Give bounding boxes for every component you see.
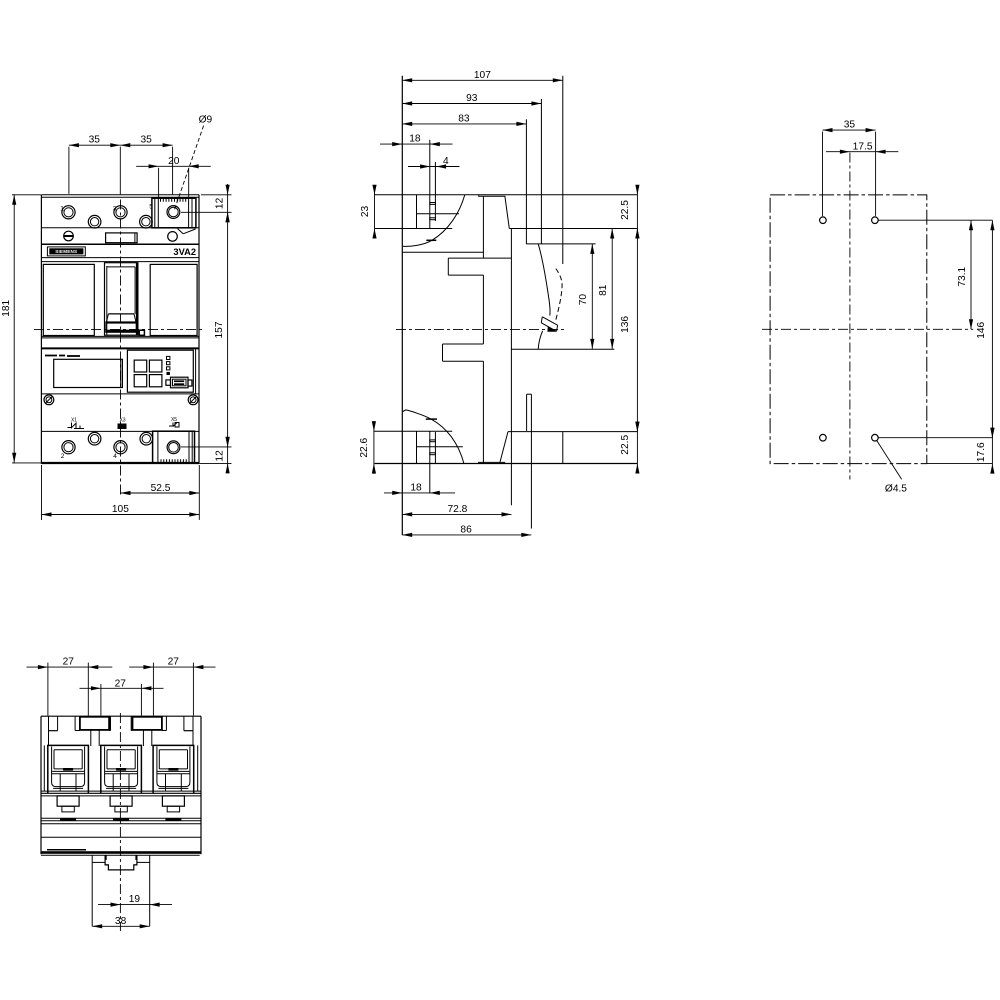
svg-text:12: 12 [214, 450, 225, 462]
svg-text:1: 1 [60, 206, 64, 213]
svg-text:Ø9: Ø9 [199, 115, 213, 126]
svg-text:86: 86 [460, 525, 472, 536]
svg-text:22.6: 22.6 [359, 437, 370, 457]
svg-text:2: 2 [61, 453, 65, 460]
svg-text:27: 27 [63, 657, 75, 668]
svg-text:19: 19 [129, 894, 141, 905]
svg-text:93: 93 [466, 93, 478, 104]
svg-text:107: 107 [474, 70, 491, 81]
svg-text:18: 18 [410, 483, 422, 494]
svg-text:20: 20 [168, 156, 180, 167]
svg-text:70: 70 [578, 294, 589, 306]
svg-text:146: 146 [976, 321, 987, 338]
svg-text:72.8: 72.8 [447, 504, 467, 515]
svg-text:18: 18 [409, 134, 421, 145]
svg-text:35: 35 [844, 119, 856, 130]
svg-text:27: 27 [168, 657, 180, 668]
svg-text:22.5: 22.5 [620, 435, 631, 455]
svg-text:157: 157 [214, 321, 225, 338]
svg-text:52.5: 52.5 [151, 483, 171, 494]
svg-text:136: 136 [620, 316, 631, 333]
svg-text:83: 83 [458, 113, 470, 124]
svg-text:X3: X3 [119, 418, 125, 424]
svg-text:Ø4.5: Ø4.5 [885, 484, 907, 495]
svg-text:27: 27 [115, 679, 127, 690]
svg-text:SIEMENS: SIEMENS [55, 249, 77, 254]
svg-text:3: 3 [113, 206, 117, 213]
svg-text:23: 23 [360, 206, 371, 218]
svg-text:17.5: 17.5 [853, 141, 873, 152]
svg-text:12: 12 [214, 197, 225, 209]
svg-text:4: 4 [113, 453, 117, 460]
svg-text:105: 105 [112, 504, 129, 515]
svg-text:81: 81 [598, 284, 609, 296]
svg-text:35: 35 [141, 134, 153, 145]
svg-text:38: 38 [115, 916, 127, 927]
svg-text:181: 181 [1, 299, 12, 316]
svg-text:4: 4 [443, 156, 449, 167]
svg-text:17.6: 17.6 [976, 442, 987, 462]
svg-text:35: 35 [89, 134, 101, 145]
svg-text:3VA2: 3VA2 [173, 247, 196, 257]
svg-text:73.1: 73.1 [957, 266, 968, 286]
svg-text:22.5: 22.5 [620, 200, 631, 220]
